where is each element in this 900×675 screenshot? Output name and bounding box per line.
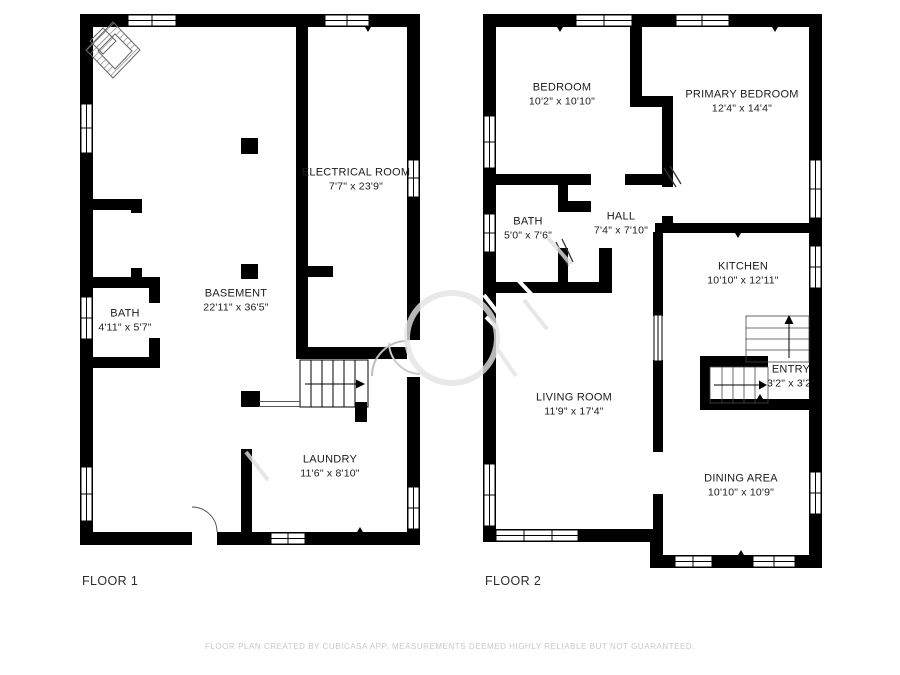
floor1-door-gaps bbox=[192, 340, 420, 545]
room-label-primary-bedroom: PRIMARY BEDROOM 12'4" x 14'4" bbox=[685, 89, 798, 116]
room-label-hall: HALL 7'4" x 7'10" bbox=[594, 211, 648, 238]
floor1-stairs bbox=[259, 360, 368, 407]
room-label-entry: ENTRY 3'2" x 3'2" bbox=[767, 364, 815, 391]
room-label-bath-floor1: BATH 4'11" x 5'7" bbox=[98, 308, 151, 335]
room-label-kitchen: KITCHEN 10'10" x 12'11" bbox=[707, 261, 779, 288]
floorplan-page: ELECTRICAL ROOM 7'7" x 23'9" BASEMENT 22… bbox=[0, 0, 900, 675]
room-label-dining-area: DINING AREA 10'10" x 10'9" bbox=[704, 473, 778, 500]
floor2-label: FLOOR 2 bbox=[485, 574, 541, 588]
room-label-basement: BASEMENT 22'11" x 36'5" bbox=[203, 288, 268, 315]
room-label-electrical-room: ELECTRICAL ROOM 7'7" x 23'9" bbox=[302, 167, 410, 194]
stair-direction-arrow-icon bbox=[356, 380, 365, 389]
room-label-living-room: LIVING ROOM 11'9" x 17'4" bbox=[536, 392, 612, 419]
floor1-label: FLOOR 1 bbox=[82, 574, 138, 588]
room-label-bath-floor2: BATH 5'0" x 7'6" bbox=[504, 216, 552, 243]
stair-direction-arrow-icon bbox=[759, 381, 767, 390]
room-label-laundry: LAUNDRY 11'6" x 8'10" bbox=[300, 454, 359, 481]
footer-disclaimer: FLOOR PLAN CREATED BY CUBICASA APP. MEAS… bbox=[0, 642, 900, 651]
room-label-bedroom: BEDROOM 10'2" x 10'10" bbox=[529, 82, 595, 109]
compass-rose-icon bbox=[86, 22, 140, 78]
